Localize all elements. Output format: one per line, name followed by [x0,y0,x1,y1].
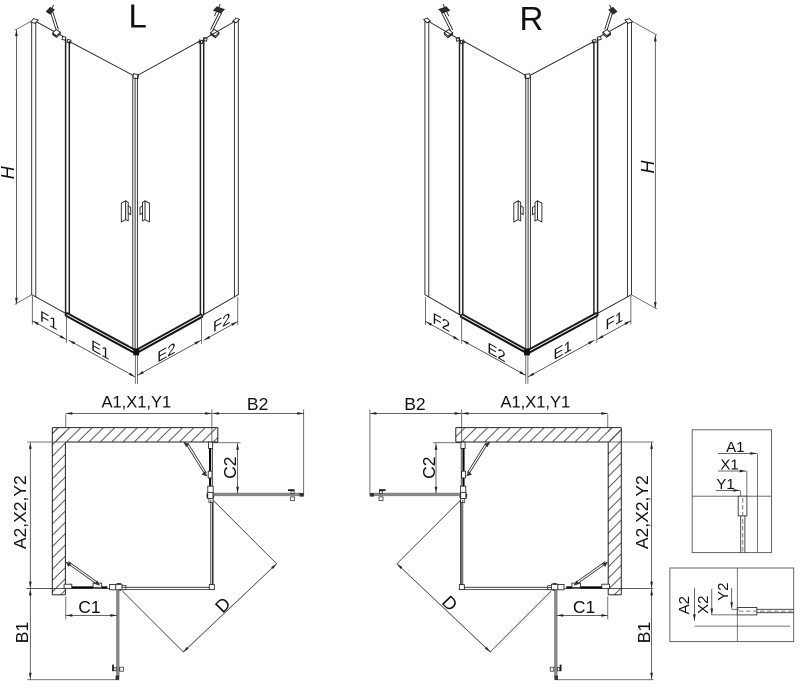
svg-text:B1: B1 [12,622,32,643]
svg-text:Y1: Y1 [716,476,734,493]
svg-text:C1: C1 [573,597,595,617]
svg-text:C2: C2 [419,457,439,479]
svg-text:R: R [520,0,544,37]
svg-text:B2: B2 [247,394,268,414]
svg-text:H: H [638,160,658,174]
svg-text:A2: A2 [676,596,693,614]
svg-text:L: L [129,0,147,35]
svg-text:A2,X2,Y2: A2,X2,Y2 [632,475,652,549]
svg-text:C2: C2 [220,457,240,479]
svg-text:B1: B1 [634,622,654,643]
svg-text:X2: X2 [695,596,712,614]
svg-text:C1: C1 [78,597,100,617]
svg-text:A1,X1,Y1: A1,X1,Y1 [500,394,570,412]
svg-text:B2: B2 [404,394,425,414]
svg-text:H: H [0,165,18,179]
svg-text:Y2: Y2 [715,583,732,601]
svg-text:A1,X1,Y1: A1,X1,Y1 [101,394,171,412]
svg-text:A2,X2,Y2: A2,X2,Y2 [10,475,30,549]
svg-text:X1: X1 [720,457,738,474]
svg-text:A1: A1 [726,439,744,456]
